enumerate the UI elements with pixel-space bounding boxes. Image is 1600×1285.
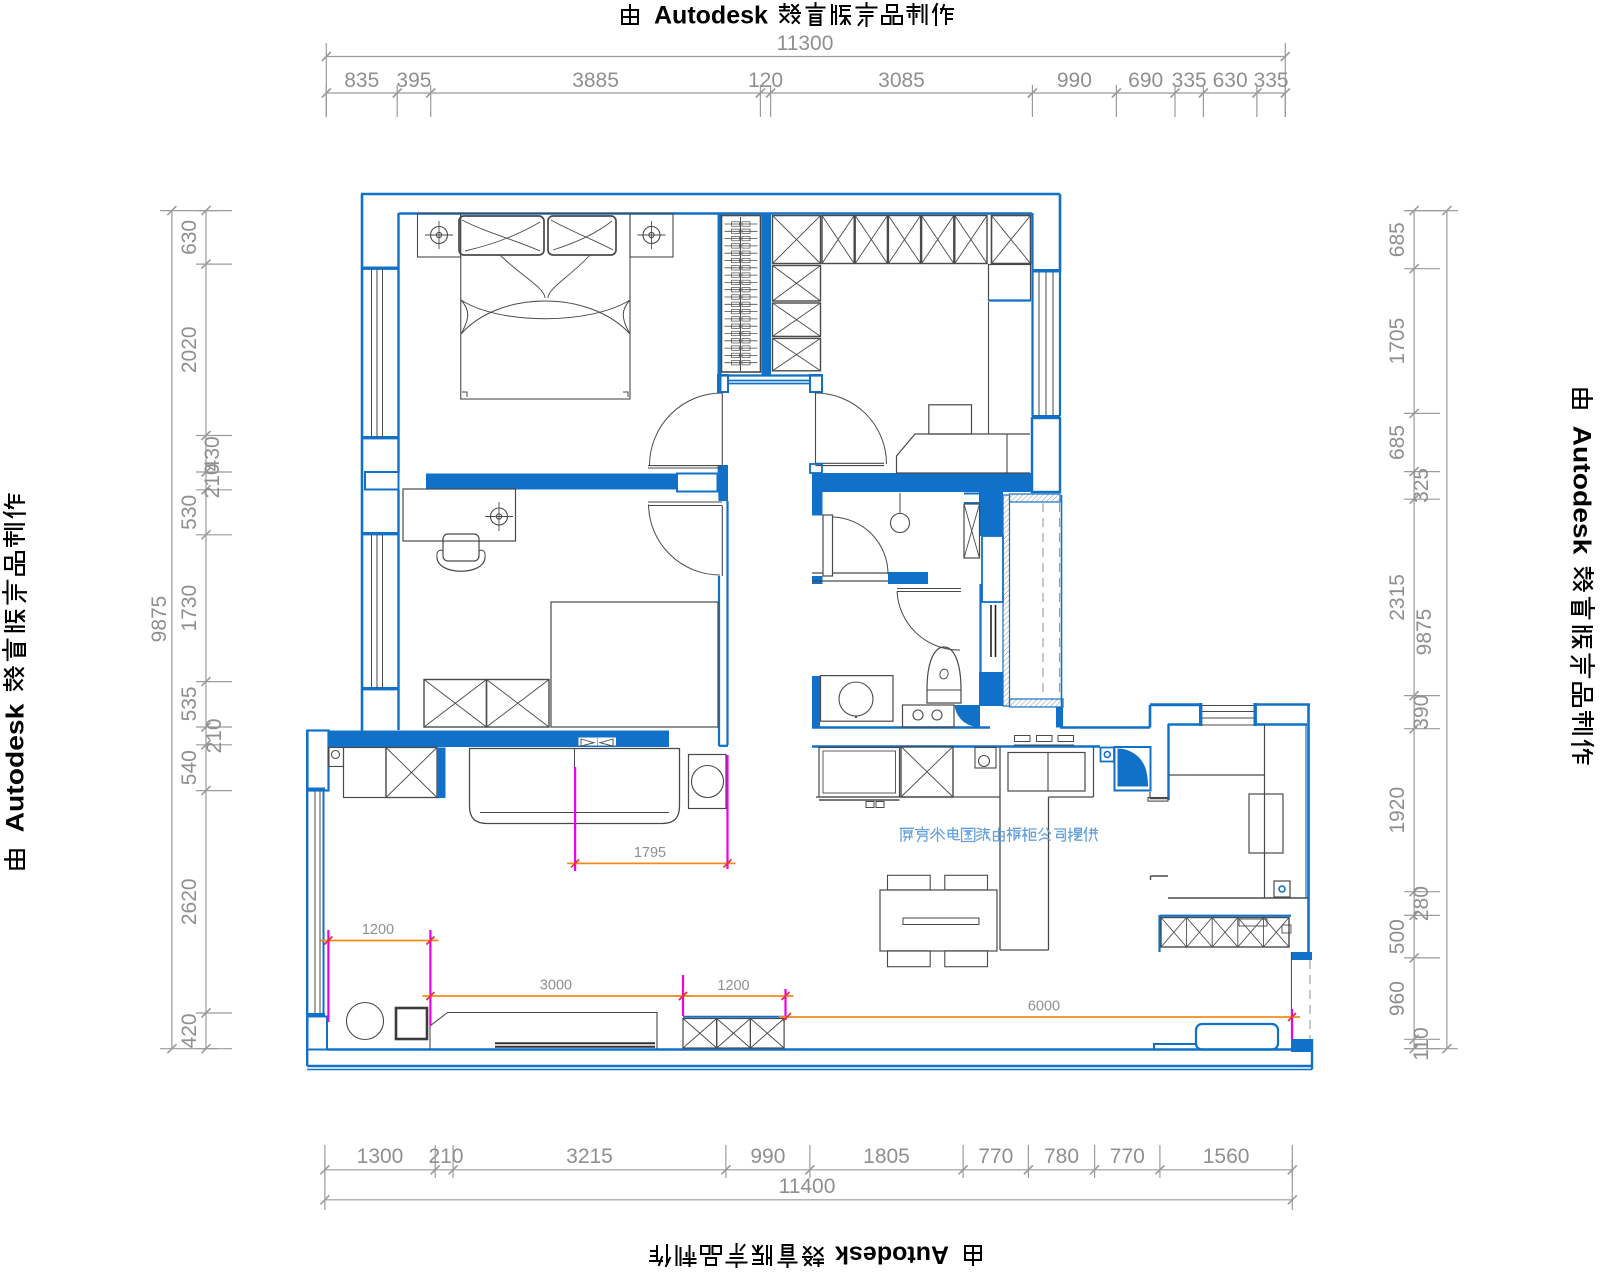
svg-text:210: 210 (201, 463, 224, 498)
svg-text:630: 630 (1213, 69, 1248, 92)
svg-text:210: 210 (428, 1145, 463, 1168)
svg-text:390: 390 (1410, 695, 1433, 730)
svg-text:120: 120 (748, 69, 783, 92)
svg-text:420: 420 (178, 1013, 201, 1048)
svg-text:210: 210 (203, 718, 226, 753)
svg-text:2020: 2020 (178, 326, 201, 373)
svg-text:1200: 1200 (362, 922, 394, 938)
svg-text:325: 325 (1410, 468, 1433, 503)
svg-text:3000: 3000 (540, 978, 572, 994)
svg-text:1730: 1730 (178, 585, 201, 632)
svg-text:110: 110 (1410, 1027, 1433, 1060)
svg-text:1200: 1200 (717, 978, 749, 994)
svg-text:530: 530 (178, 495, 201, 530)
svg-text:685: 685 (1386, 222, 1409, 257)
svg-text:9875: 9875 (1413, 609, 1436, 656)
svg-text:3215: 3215 (566, 1145, 613, 1168)
svg-text:960: 960 (1386, 981, 1409, 1016)
svg-text:1920: 1920 (1386, 787, 1409, 834)
svg-text:535: 535 (178, 686, 201, 721)
svg-text:335: 335 (1254, 69, 1289, 92)
svg-text:1560: 1560 (1203, 1145, 1250, 1168)
svg-text:11300: 11300 (777, 32, 834, 55)
svg-text:540: 540 (178, 750, 201, 785)
svg-text:1300: 1300 (357, 1145, 404, 1168)
svg-text:835: 835 (344, 69, 379, 92)
svg-text:9875: 9875 (148, 596, 171, 643)
svg-text:335: 335 (1172, 69, 1207, 92)
svg-text:685: 685 (1386, 425, 1409, 460)
svg-text:500: 500 (1386, 919, 1409, 954)
svg-text:690: 690 (1128, 69, 1163, 92)
svg-text:990: 990 (750, 1145, 785, 1168)
svg-text:395: 395 (396, 69, 431, 92)
svg-text:2620: 2620 (178, 878, 201, 925)
svg-text:11400: 11400 (779, 1175, 836, 1198)
svg-text:770: 770 (978, 1145, 1013, 1168)
svg-text:3885: 3885 (572, 69, 619, 92)
svg-text:780: 780 (1044, 1145, 1079, 1168)
svg-text:1795: 1795 (634, 845, 666, 861)
svg-text:1805: 1805 (863, 1145, 910, 1168)
svg-text:3085: 3085 (878, 69, 925, 92)
svg-text:6000: 6000 (1028, 999, 1060, 1015)
svg-text:990: 990 (1057, 69, 1092, 92)
svg-text:770: 770 (1110, 1145, 1145, 1168)
svg-text:2315: 2315 (1386, 574, 1409, 621)
svg-text:280: 280 (1410, 886, 1433, 921)
svg-text:630: 630 (178, 220, 201, 255)
svg-text:1705: 1705 (1386, 318, 1409, 365)
